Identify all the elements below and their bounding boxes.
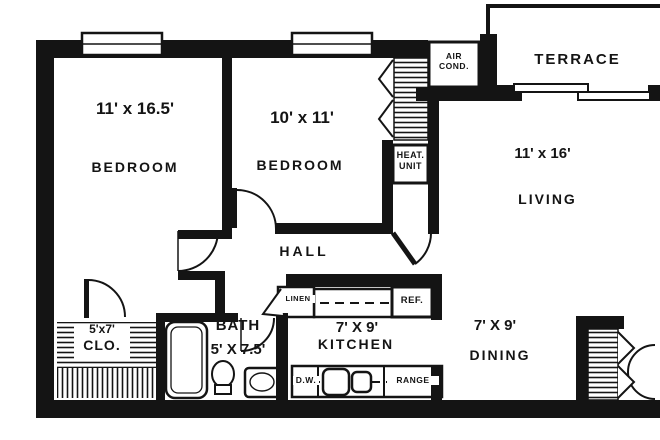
terrace-railing: [486, 4, 660, 37]
bedroom2-door-arc: [237, 190, 276, 229]
hall-label: HALL: [272, 244, 336, 259]
kitchen-dimensions: 7' X 9': [325, 320, 389, 336]
bathtub: [166, 322, 207, 398]
exterior-wall-left: [36, 40, 54, 418]
kitchen-dining-wall-upper: [431, 274, 442, 320]
bedroom2-bifold-icon: [379, 60, 393, 97]
entry-door-arc: [628, 345, 655, 399]
living-label: LIVING: [505, 192, 590, 207]
air-conditioner-label-line1: AIR: [431, 52, 477, 61]
sliding-door-panel: [578, 92, 650, 100]
bath-dimensions: 5' X 7.5': [198, 342, 278, 358]
hall-living-door-leaf: [393, 233, 415, 264]
bath-label: BATH: [206, 318, 270, 334]
closet-door-arc: [88, 280, 125, 317]
closet-door-leaf: [84, 279, 89, 318]
heat-unit-label-line1: HEAT.: [394, 151, 427, 160]
bedroom2-door-leaf: [231, 188, 237, 228]
living-west-wall: [428, 99, 439, 234]
sliding-door-panel: [514, 84, 588, 92]
hall-nook-wall: [178, 271, 225, 280]
closet-dimensions: 5'x7': [78, 323, 126, 336]
bedroom1-hall-wall: [178, 230, 232, 239]
bedroom1-label: BEDROOM: [85, 160, 185, 175]
linen-closet-label: LINEN: [281, 295, 315, 303]
entry-closet-left-wall: [576, 316, 588, 400]
air-conditioner-label-line2: COND.: [431, 62, 477, 71]
bedroom2-label: BEDROOM: [250, 158, 350, 173]
dining-dimensions: 7' X 9': [462, 318, 528, 334]
living-dimensions: 11' x 16': [500, 146, 585, 162]
kitchen-label: KITCHEN: [306, 337, 406, 352]
toilet-base: [215, 385, 231, 394]
refrigerator-label: REF.: [395, 296, 429, 306]
dining-label: DINING: [460, 348, 540, 363]
hall-living-door-arc: [415, 233, 431, 264]
closet-bath-divider: [156, 313, 165, 400]
heat-unit-left-wall: [382, 140, 393, 234]
bedroom2-hall-wall: [275, 223, 385, 234]
bedroom2-dimensions: 10' x 11': [252, 109, 352, 127]
wall-between-bedrooms: [222, 58, 232, 230]
bedroom1-dimensions: 11' x 16.5': [80, 100, 190, 118]
dishwasher-label: D.W.: [293, 376, 319, 385]
floor-plan: 11' x 16.5' BEDROOM 10' x 11' BEDROOM 11…: [0, 0, 660, 440]
heat-unit-label-line2: UNIT: [394, 162, 427, 171]
kitchen-sink-basin: [352, 372, 371, 392]
closet-label: CLO.: [76, 338, 128, 353]
exterior-wall-bottom: [36, 400, 660, 418]
bedroom2-bifold-icon: [379, 100, 393, 137]
toilet: [212, 361, 234, 387]
kitchen-top-wall: [286, 274, 442, 287]
terrace-label: TERRACE: [525, 52, 630, 68]
terrace-corner-wall: [480, 34, 497, 101]
linen-door-icon: [263, 289, 283, 316]
entry-closet-bifold-icon: [618, 366, 634, 398]
kitchen-sink-basin: [323, 369, 349, 395]
range-label: RANGE: [387, 376, 439, 385]
